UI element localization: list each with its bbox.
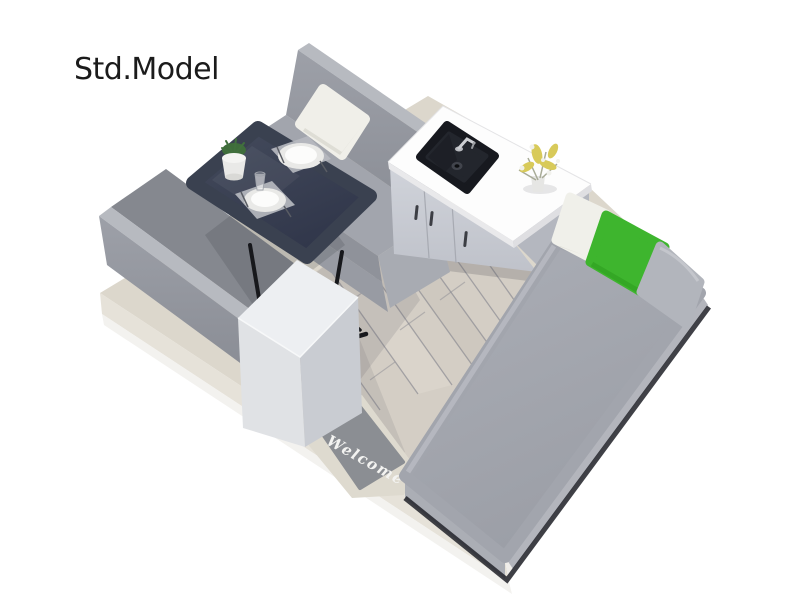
room-render: Std.Model (0, 0, 800, 600)
isometric-room-scene: Welcome (0, 0, 800, 600)
drinking-glass (255, 172, 265, 190)
potted-plant (222, 139, 246, 181)
